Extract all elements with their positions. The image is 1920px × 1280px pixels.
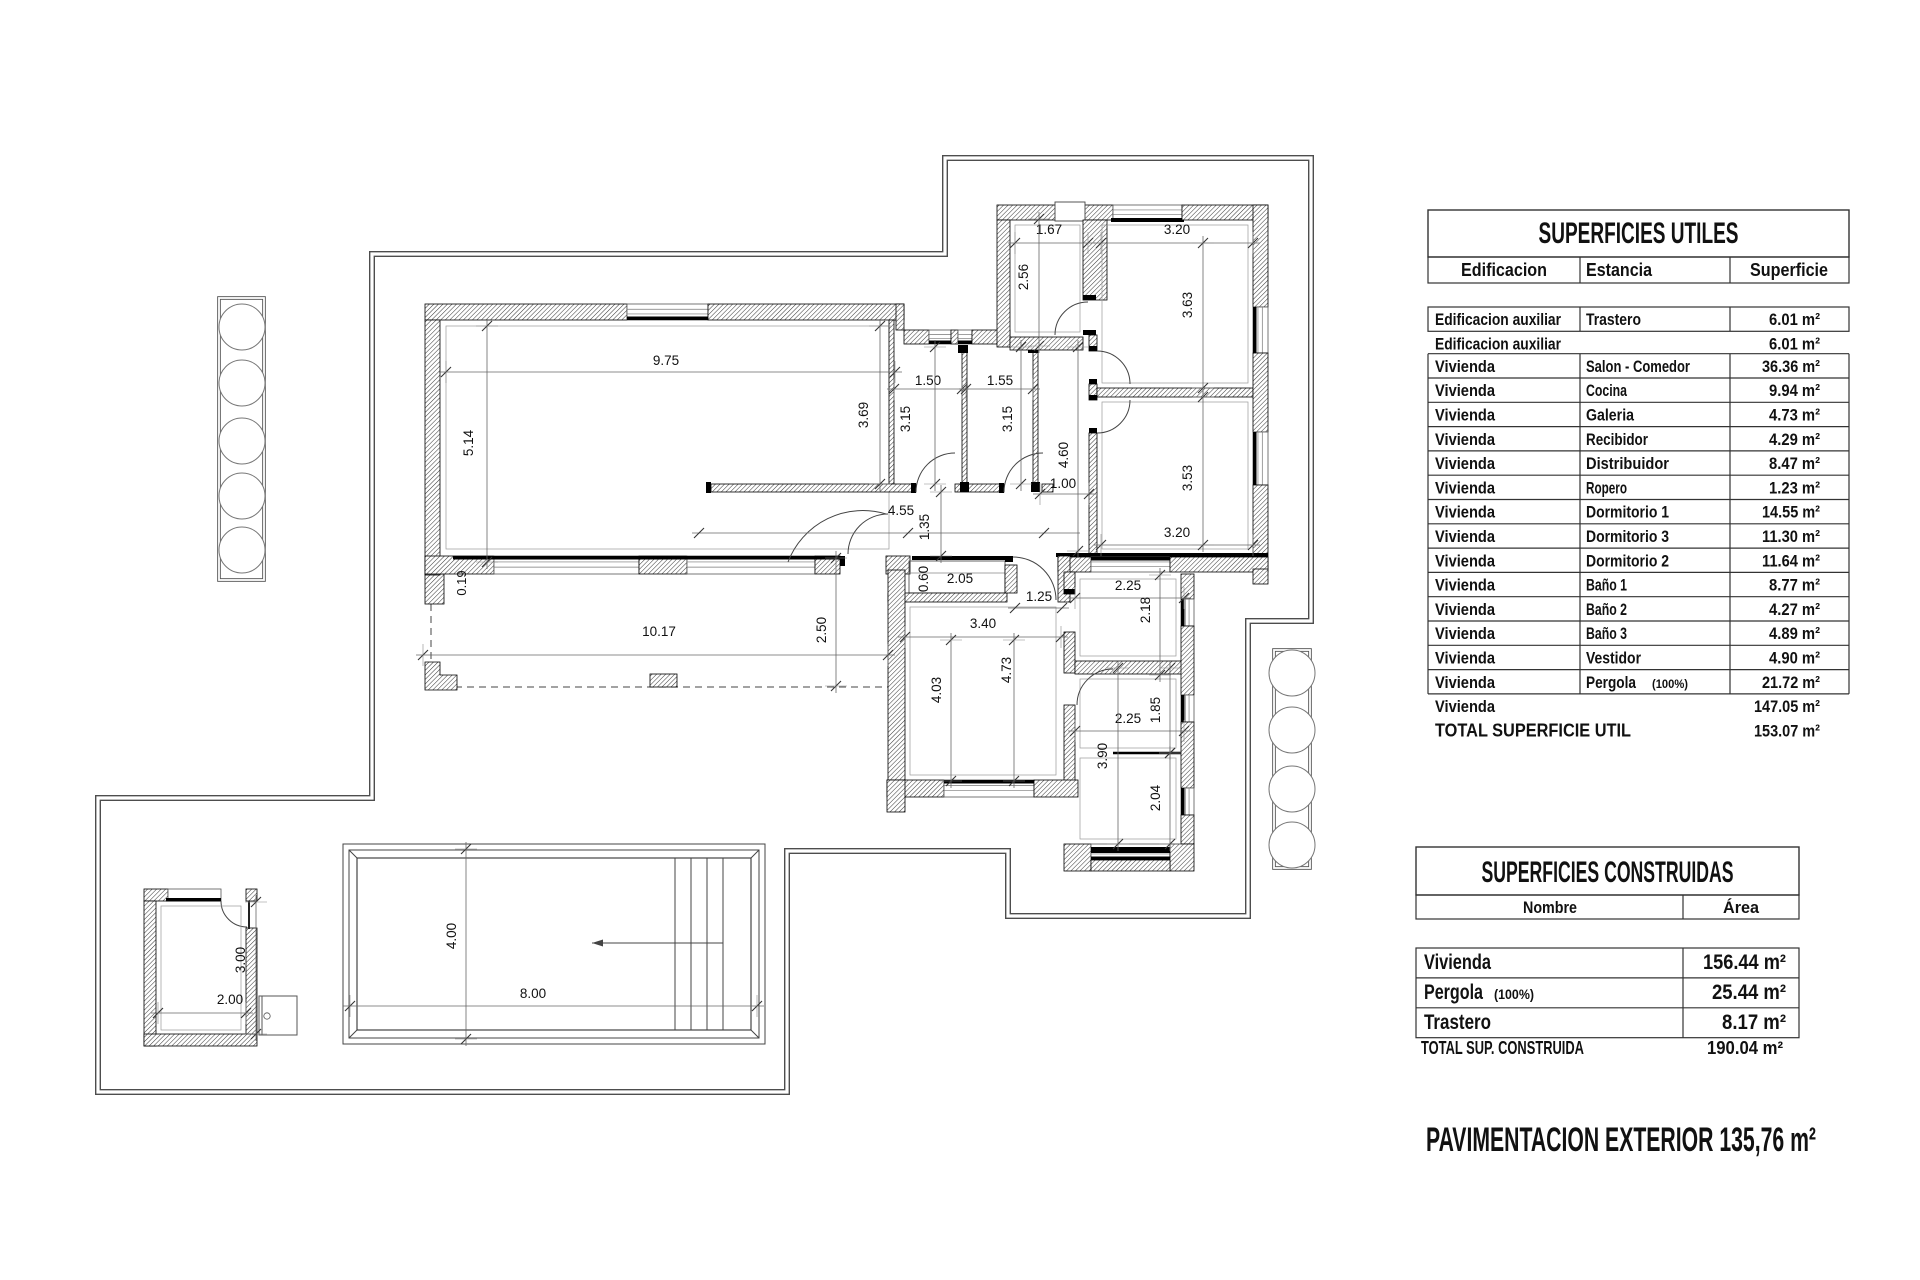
svg-text:Cocina: Cocina — [1586, 381, 1627, 400]
svg-text:10.17: 10.17 — [642, 624, 676, 639]
svg-text:8.00: 8.00 — [520, 986, 546, 1001]
svg-text:Vivienda: Vivienda — [1435, 697, 1495, 716]
svg-text:4.29 m²: 4.29 m² — [1769, 430, 1820, 449]
svg-text:Edificacion auxiliar: Edificacion auxiliar — [1435, 334, 1561, 353]
svg-text:Vivienda: Vivienda — [1435, 357, 1495, 376]
svg-text:Dormitorio 1: Dormitorio 1 — [1586, 503, 1669, 522]
svg-text:Vivienda: Vivienda — [1435, 381, 1495, 400]
svg-text:4.27 m²: 4.27 m² — [1769, 600, 1820, 619]
svg-text:Edificacion: Edificacion — [1461, 260, 1547, 280]
svg-text:11.64 m²: 11.64 m² — [1762, 551, 1820, 570]
svg-text:Vivienda: Vivienda — [1435, 624, 1495, 643]
svg-text:Baño 3: Baño 3 — [1586, 624, 1627, 643]
svg-text:8.17 m²: 8.17 m² — [1722, 1011, 1786, 1034]
svg-text:3.53: 3.53 — [1180, 465, 1195, 491]
svg-text:2.25: 2.25 — [1115, 578, 1141, 593]
svg-text:6.01 m²: 6.01 m² — [1769, 334, 1820, 353]
svg-text:Baño 1: Baño 1 — [1586, 576, 1627, 595]
svg-text:3.69: 3.69 — [856, 402, 871, 428]
svg-text:2.04: 2.04 — [1148, 784, 1163, 811]
svg-text:Ropero: Ropero — [1586, 478, 1627, 497]
svg-text:Vestidor: Vestidor — [1586, 648, 1641, 667]
svg-text:9.75: 9.75 — [653, 353, 679, 368]
svg-text:TOTAL SUP. CONSTRUIDA: TOTAL SUP. CONSTRUIDA — [1421, 1038, 1584, 1058]
svg-text:Distribuidor: Distribuidor — [1586, 454, 1669, 473]
svg-text:1.00: 1.00 — [1050, 476, 1076, 491]
svg-text:Edificacion auxiliar: Edificacion auxiliar — [1435, 310, 1561, 329]
svg-text:156.44 m²: 156.44 m² — [1703, 951, 1786, 974]
svg-text:8.77 m²: 8.77 m² — [1769, 576, 1820, 595]
svg-text:Vivienda: Vivienda — [1435, 551, 1495, 570]
svg-text:3.90: 3.90 — [1095, 743, 1110, 769]
svg-text:4.60: 4.60 — [1056, 442, 1071, 468]
svg-text:Dormitorio 3: Dormitorio 3 — [1586, 527, 1669, 546]
svg-text:Dormitorio 2: Dormitorio 2 — [1586, 551, 1669, 570]
svg-text:3.20: 3.20 — [1164, 525, 1190, 540]
svg-text:2.50: 2.50 — [814, 617, 829, 643]
svg-text:3.15: 3.15 — [1000, 406, 1015, 432]
svg-text:0.19: 0.19 — [454, 570, 469, 595]
svg-text:2.00: 2.00 — [217, 992, 243, 1007]
svg-text:(100%): (100%) — [1494, 986, 1534, 1002]
svg-text:TOTAL SUPERFICIE UTIL: TOTAL SUPERFICIE UTIL — [1435, 720, 1631, 740]
svg-text:Baño 2: Baño 2 — [1586, 600, 1627, 619]
svg-text:4.73 m²: 4.73 m² — [1769, 405, 1820, 424]
svg-text:Pergola: Pergola — [1586, 673, 1636, 692]
svg-text:2.25: 2.25 — [1115, 711, 1141, 726]
svg-text:3.63: 3.63 — [1180, 292, 1195, 318]
svg-text:Vivienda: Vivienda — [1435, 600, 1495, 619]
svg-text:Vivienda: Vivienda — [1435, 503, 1495, 522]
svg-text:Vivienda: Vivienda — [1435, 405, 1495, 424]
svg-text:4.90 m²: 4.90 m² — [1769, 648, 1820, 667]
svg-text:4.03: 4.03 — [929, 677, 944, 703]
svg-text:4.00: 4.00 — [444, 923, 459, 949]
svg-text:Área: Área — [1723, 898, 1760, 917]
svg-text:Galeria: Galeria — [1586, 405, 1634, 424]
svg-text:Vivienda: Vivienda — [1435, 478, 1495, 497]
svg-text:2.18: 2.18 — [1138, 597, 1153, 623]
svg-text:Vivienda: Vivienda — [1435, 673, 1495, 692]
svg-text:Vivienda: Vivienda — [1435, 430, 1495, 449]
svg-text:SUPERFICIES UTILES: SUPERFICIES UTILES — [1539, 217, 1739, 250]
svg-text:3.00: 3.00 — [233, 947, 248, 973]
svg-text:Vivienda: Vivienda — [1424, 951, 1491, 974]
svg-text:8.47 m²: 8.47 m² — [1769, 454, 1820, 473]
svg-text:Vivienda: Vivienda — [1435, 648, 1495, 667]
svg-text:14.55 m²: 14.55 m² — [1762, 503, 1820, 522]
svg-text:1.23 m²: 1.23 m² — [1769, 478, 1820, 497]
svg-text:2.56: 2.56 — [1016, 264, 1031, 290]
svg-text:5.14: 5.14 — [461, 429, 476, 456]
svg-text:1.55: 1.55 — [987, 373, 1013, 388]
svg-text:153.07 m²: 153.07 m² — [1754, 721, 1820, 740]
svg-text:4.73: 4.73 — [999, 657, 1014, 683]
svg-text:1.35: 1.35 — [917, 514, 932, 540]
svg-text:1.85: 1.85 — [1148, 697, 1163, 723]
svg-text:3.15: 3.15 — [898, 406, 913, 432]
svg-text:(100%): (100%) — [1652, 677, 1688, 691]
svg-text:SUPERFICIES CONSTRUIDAS: SUPERFICIES CONSTRUIDAS — [1482, 856, 1734, 889]
svg-text:11.30 m²: 11.30 m² — [1762, 527, 1820, 546]
svg-text:Trastero: Trastero — [1586, 310, 1641, 329]
svg-text:2.05: 2.05 — [947, 571, 973, 586]
svg-text:Vivienda: Vivienda — [1435, 527, 1495, 546]
svg-text:4.55: 4.55 — [888, 503, 914, 518]
svg-text:1.67: 1.67 — [1036, 222, 1062, 237]
svg-text:147.05 m²: 147.05 m² — [1754, 697, 1820, 716]
svg-text:190.04 m²: 190.04 m² — [1707, 1038, 1783, 1058]
svg-text:Vivienda: Vivienda — [1435, 454, 1495, 473]
svg-text:0.60: 0.60 — [916, 566, 931, 592]
svg-text:1.50: 1.50 — [915, 373, 941, 388]
svg-text:3.40: 3.40 — [970, 616, 996, 631]
svg-text:Salon - Comedor: Salon - Comedor — [1586, 357, 1690, 376]
svg-text:Estancia: Estancia — [1586, 260, 1653, 280]
svg-text:Nombre: Nombre — [1523, 898, 1577, 917]
svg-text:Trastero: Trastero — [1424, 1011, 1491, 1034]
svg-text:6.01 m²: 6.01 m² — [1769, 310, 1820, 329]
svg-text:PAVIMENTACION EXTERIOR 135,76: PAVIMENTACION EXTERIOR 135,76 m² — [1426, 1121, 1816, 1159]
svg-text:Pergola: Pergola — [1424, 981, 1483, 1004]
svg-text:Superficie: Superficie — [1750, 260, 1828, 280]
svg-text:36.36 m²: 36.36 m² — [1762, 357, 1820, 376]
svg-text:Vivienda: Vivienda — [1435, 576, 1495, 595]
svg-text:1.25: 1.25 — [1026, 589, 1052, 604]
svg-text:4.89 m²: 4.89 m² — [1769, 624, 1820, 643]
svg-text:21.72 m²: 21.72 m² — [1762, 673, 1820, 692]
svg-text:25.44 m²: 25.44 m² — [1712, 981, 1786, 1004]
svg-text:Recibidor: Recibidor — [1586, 430, 1648, 449]
svg-text:3.20: 3.20 — [1164, 222, 1190, 237]
svg-text:9.94 m²: 9.94 m² — [1769, 381, 1820, 400]
